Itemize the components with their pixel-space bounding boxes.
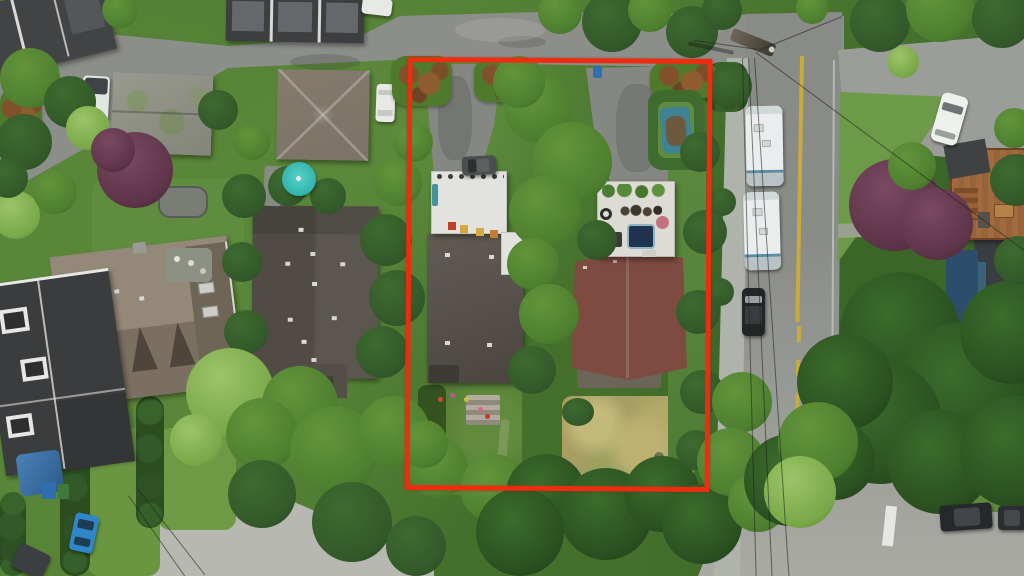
power-line <box>758 16 842 51</box>
aerial-photo <box>0 0 1024 576</box>
power-line <box>755 52 1024 251</box>
power-line <box>694 40 758 50</box>
power-line <box>748 58 773 576</box>
power-line <box>128 495 186 576</box>
power-line <box>742 58 757 576</box>
property-boundary <box>404 57 712 492</box>
power-line <box>138 489 205 575</box>
